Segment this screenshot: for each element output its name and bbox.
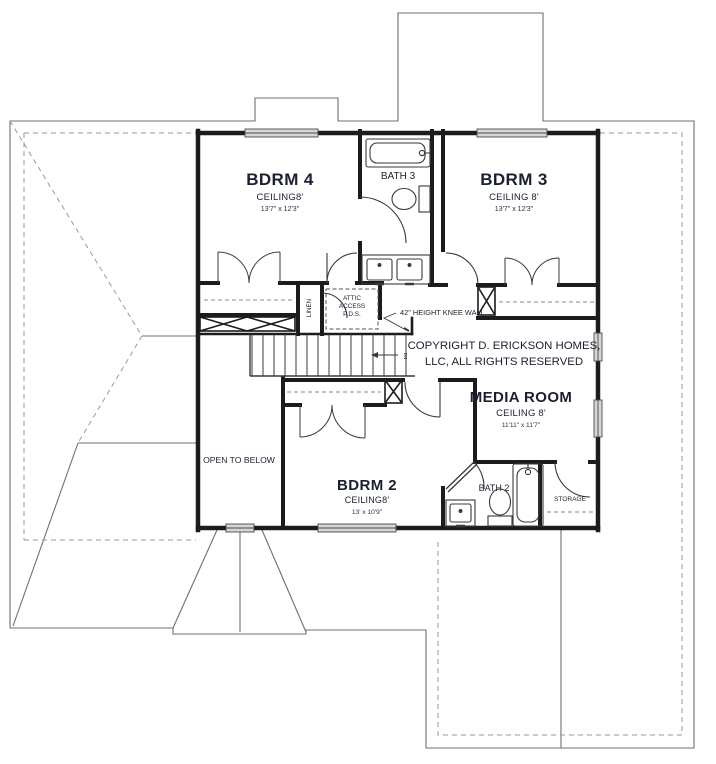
bdrm2-closet-double-door xyxy=(300,405,365,438)
stairs xyxy=(250,334,415,376)
bdrm3-closet-double-door xyxy=(505,258,559,285)
bdrm2-dims: 13' x 10'9" xyxy=(352,509,383,516)
bdrm3-label: BDRM 3 xyxy=(480,170,548,189)
attic-access-line2: ACCESS xyxy=(339,303,365,310)
open-below-bay-window xyxy=(226,524,254,532)
bdrm4-dims: 13'7" x 12'3" xyxy=(261,206,300,213)
attic-access-line3: P.D.S. xyxy=(343,311,361,318)
porch-hip-lines xyxy=(173,530,306,632)
left-roof-hip-dashed xyxy=(10,121,142,443)
storage-door xyxy=(555,462,590,497)
interior-walls xyxy=(198,131,598,528)
copyright-line2: LLC, ALL RIGHTS RESERVED xyxy=(425,356,583,368)
bdrm4-entry-door xyxy=(327,253,357,283)
bath3-door xyxy=(360,197,406,243)
storage-label: STORAGE xyxy=(554,496,587,503)
bdrm3-window xyxy=(477,129,547,137)
bath2-tub xyxy=(513,464,543,526)
attic-access-line1: ATTIC xyxy=(343,295,361,302)
media-room-ceiling: CEILING 8' xyxy=(496,408,546,419)
bdrm3-ceiling: CEILING 8' xyxy=(489,192,539,203)
bdrm3-entry-door xyxy=(446,253,478,285)
chase-bdrm4 xyxy=(200,317,295,331)
bath3-toilet xyxy=(392,186,430,212)
chase-bdrm2 xyxy=(385,380,402,403)
double-sink-vanity xyxy=(362,255,430,284)
bath2-label: BATH 2 xyxy=(479,483,510,493)
media-window-lower xyxy=(594,400,602,437)
open-to-below-label: OPEN TO BELOW xyxy=(203,455,276,465)
bdrm3-dims: 13'7" x 12'3" xyxy=(495,206,534,213)
bdrm2-entry-door xyxy=(405,382,440,417)
floor-plan-drawing: BDRM 4 CEILING8' 13'7" x 12'3" BATH 3 BD… xyxy=(0,0,716,764)
bath2-toilet xyxy=(488,489,512,526)
stair-direction-label: DN xyxy=(403,353,408,360)
knee-wall-tick xyxy=(404,328,409,331)
bdrm2-ceiling: CEILING8' xyxy=(345,495,390,505)
bdrm2-window xyxy=(318,524,396,532)
bath3-fixtures xyxy=(362,139,430,284)
bdrm4-closet-double-door xyxy=(218,252,280,283)
media-room-dims: 11'11" x 11'7" xyxy=(502,422,541,429)
left-roof-ridge-lines xyxy=(13,336,196,626)
bdrm4-ceiling: CEILING8' xyxy=(257,192,304,203)
bath3-label: BATH 3 xyxy=(381,171,416,182)
bath2-sink xyxy=(446,500,475,526)
copyright-line1: COPYRIGHT D. ERICKSON HOMES, xyxy=(408,340,601,352)
knee-wall-note: 42" HEIGHT KNEE WALL xyxy=(400,308,485,317)
media-room-label: MEDIA ROOM xyxy=(470,389,573,406)
bdrm2-label: BDRM 2 xyxy=(337,477,397,494)
bdrm4-window xyxy=(245,129,318,137)
bath3-tub xyxy=(366,139,430,167)
linen-label: LINEN xyxy=(306,299,313,317)
roof-dashed-lines xyxy=(10,121,682,735)
floor-plan-page: BDRM 4 CEILING8' 13'7" x 12'3" BATH 3 BD… xyxy=(0,0,716,764)
bdrm4-label: BDRM 4 xyxy=(246,170,314,189)
bath2-fixtures xyxy=(446,464,543,526)
